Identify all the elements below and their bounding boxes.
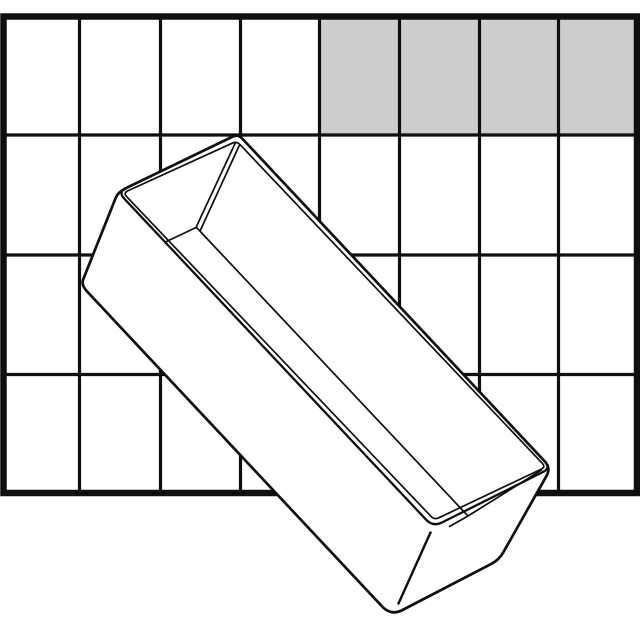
- insert-box-module-illustration: [0, 0, 640, 640]
- illustration-canvas: [0, 0, 640, 640]
